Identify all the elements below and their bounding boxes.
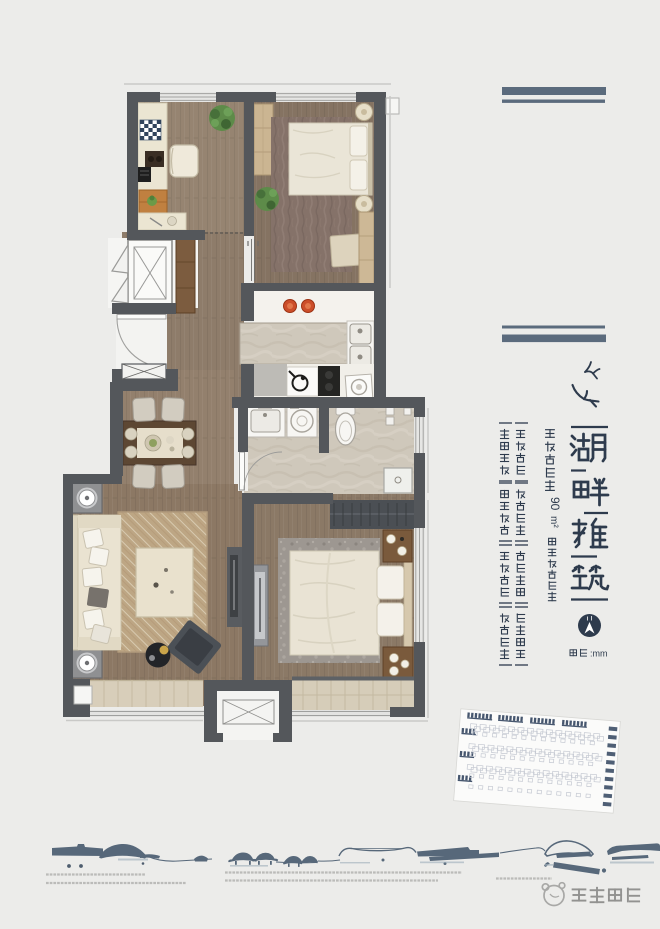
svg-text:m²: m² [548,516,559,528]
svg-text::mm: :mm [590,649,608,659]
svg-text:90: 90 [548,497,562,511]
